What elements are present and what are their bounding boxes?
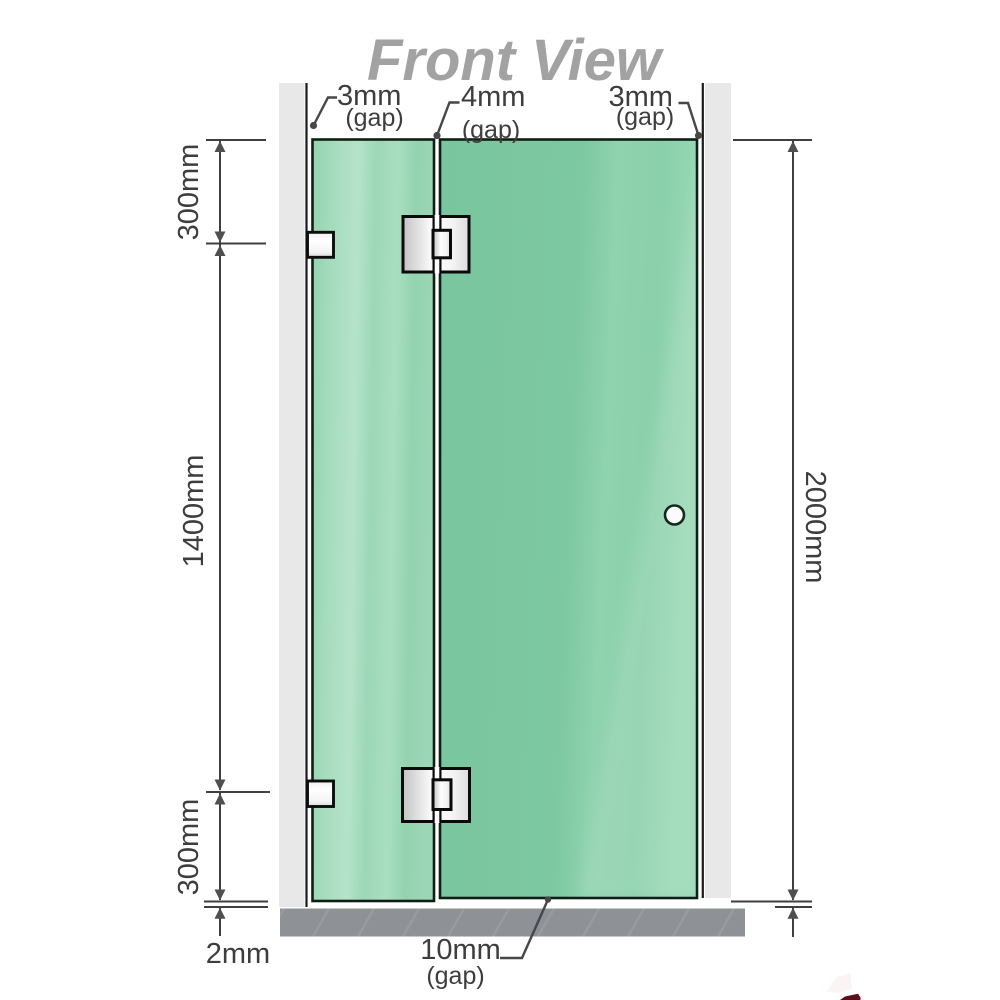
- svg-text:2mm: 2mm: [206, 938, 270, 970]
- svg-text:4mm: 4mm: [461, 81, 525, 113]
- svg-text:(gap): (gap): [616, 103, 674, 131]
- svg-text:1400mm: 1400mm: [178, 455, 210, 568]
- svg-text:(gap): (gap): [345, 104, 403, 132]
- svg-text:300mm: 300mm: [173, 799, 205, 896]
- svg-text:300mm: 300mm: [173, 144, 205, 241]
- svg-text:2000mm: 2000mm: [799, 471, 831, 584]
- svg-text:(gap): (gap): [426, 962, 484, 990]
- svg-text:(gap): (gap): [462, 116, 520, 144]
